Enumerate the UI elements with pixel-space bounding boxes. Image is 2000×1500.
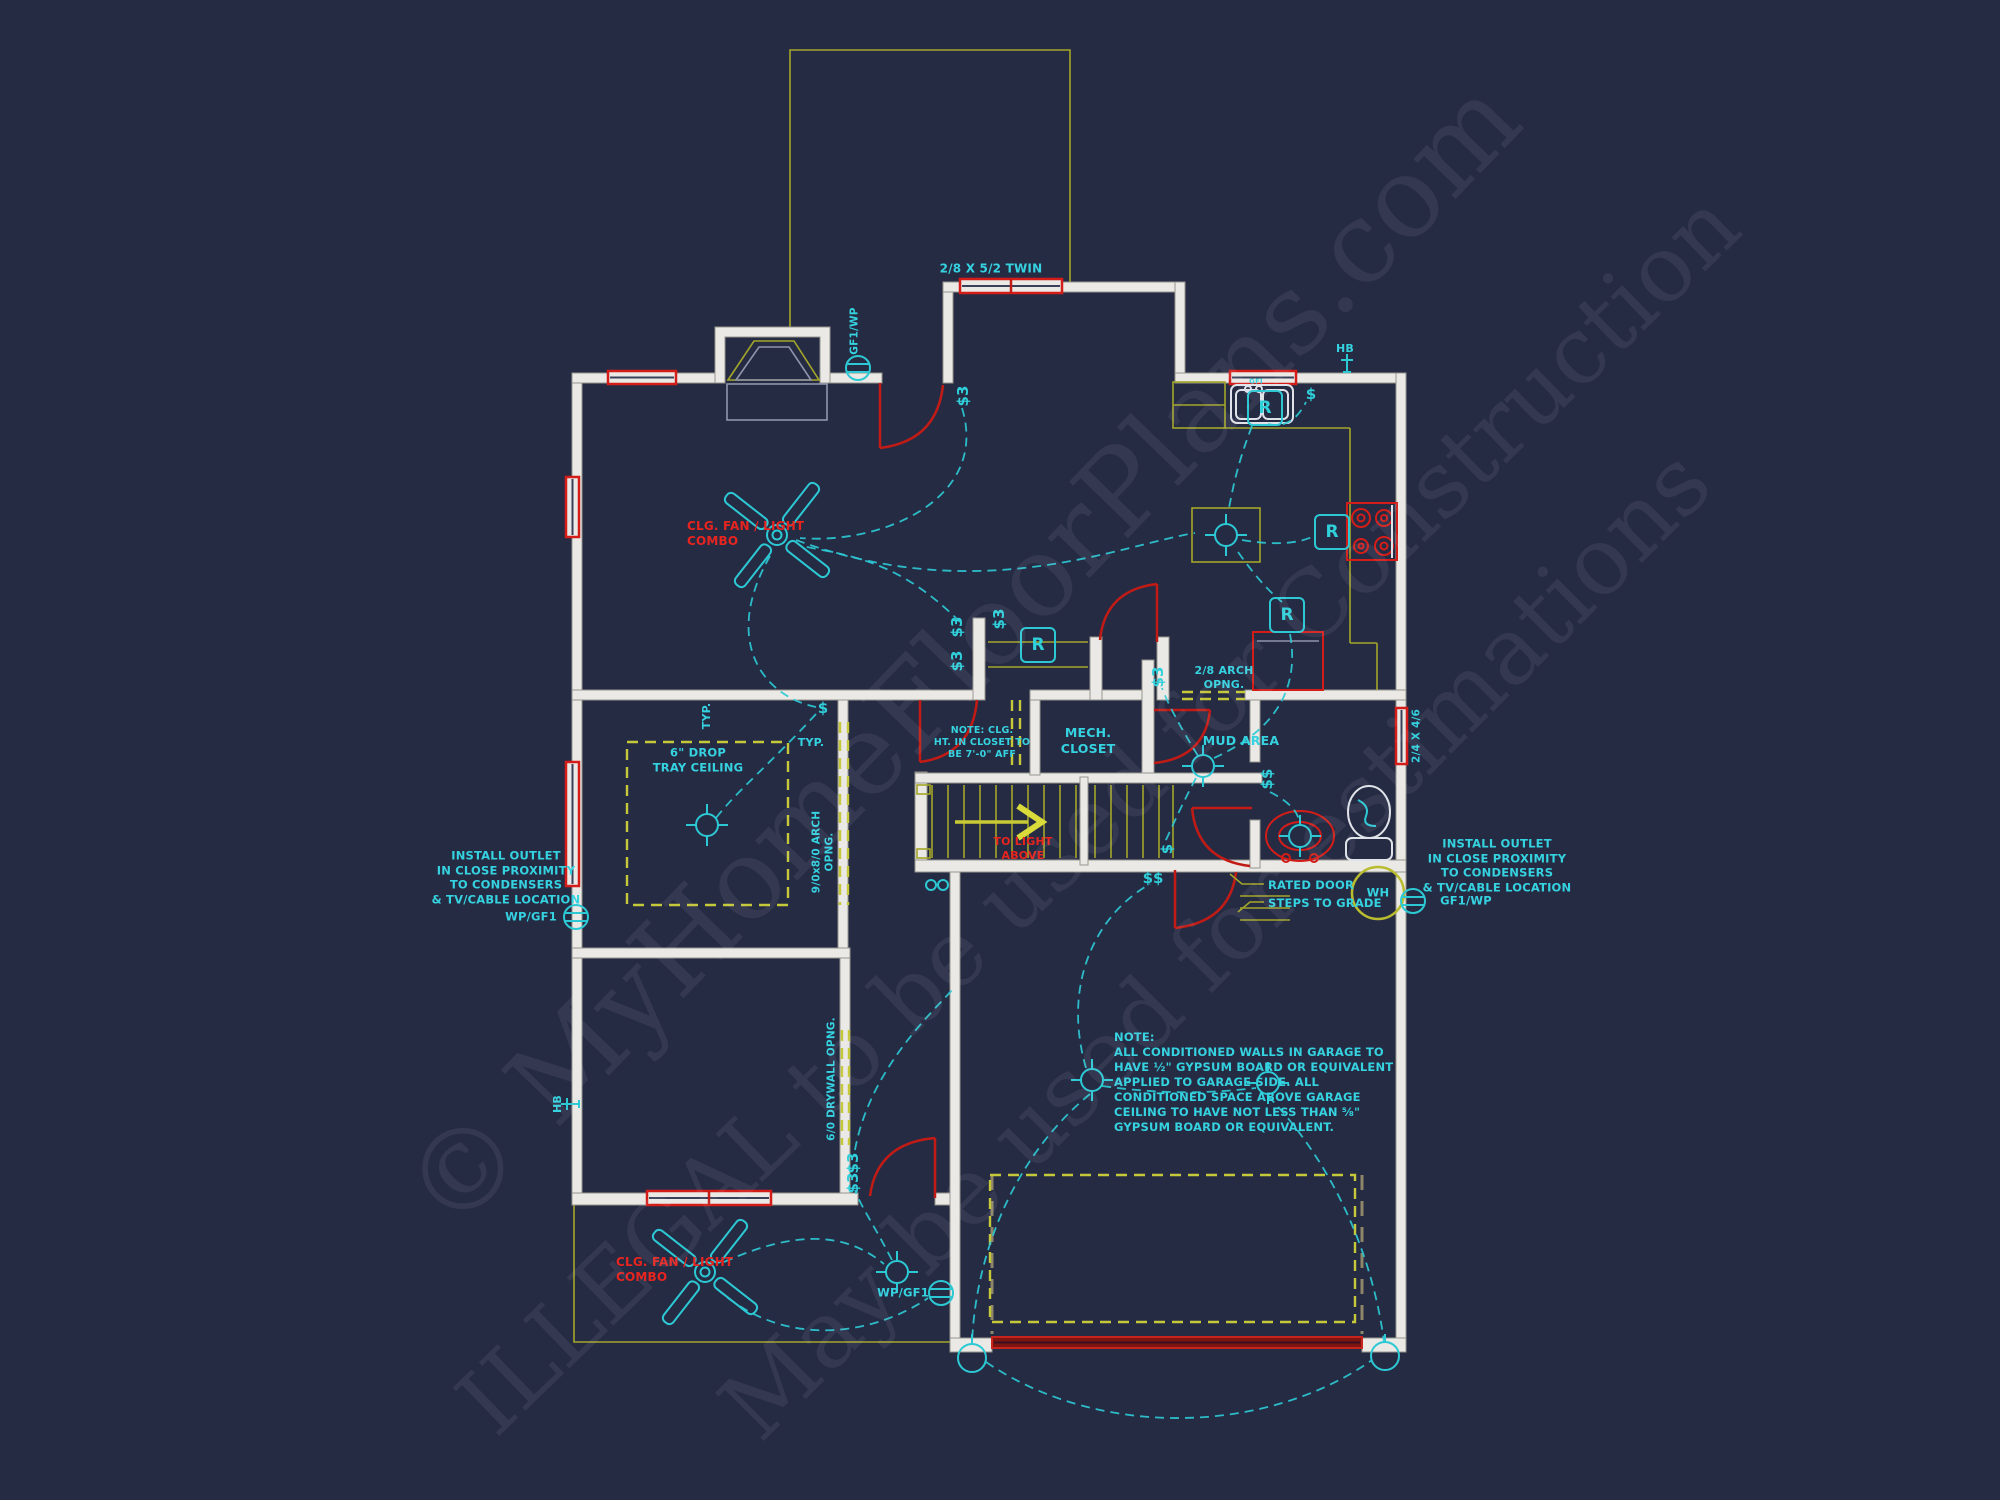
label-mech-closet: MECH. CLOSET — [1061, 725, 1116, 757]
label-hose-bib-top: HB — [1336, 342, 1354, 356]
label-install-outlet-left: INSTALL OUTLET IN CLOSE PROXIMITY TO CON… — [432, 849, 581, 908]
label-drywall-opening: 6/0 DRYWALL OPNG. — [825, 1017, 838, 1141]
recessed-light-kitchen-icon: R — [1325, 522, 1338, 542]
label-gf1-wp-right: GF1/WP — [1440, 894, 1492, 909]
switch-mud-single-icon: $ — [1158, 844, 1176, 854]
label-closet-note: NOTE: CLG. HT. IN CLOSET TO BE 7'-0" AFF — [934, 725, 1030, 761]
label-typ-vertical: TYP. — [700, 703, 714, 730]
label-garage-note: NOTE: ALL CONDITIONED WALLS IN GARAGE TO… — [1114, 1030, 1393, 1135]
label-twin-window: 2/8 X 5/2 TWIN — [940, 261, 1043, 276]
recessed-light-boxes — [1021, 391, 1349, 662]
label-to-light-above: TO LIGHT ABOVE — [993, 835, 1052, 863]
floor-plan-canvas: 2/8 X 5/2 TWIN HB HB GFI 2/8 ARCH OPNG. … — [0, 0, 2000, 1500]
switch-3way-entry-icon: $3 — [954, 386, 972, 407]
recessed-light-sink-icon: R — [1258, 398, 1271, 418]
pantry-cabinet — [1253, 632, 1323, 690]
label-hose-bib-left: HB — [551, 1095, 565, 1113]
label-gf1-wp-deck: GF1/WP — [848, 307, 861, 354]
switch-double-powder-icon: $$ — [1258, 769, 1276, 790]
label-water-heater: WH — [1367, 886, 1390, 901]
recessed-light-hall-icon: R — [1031, 635, 1044, 655]
switch-3way-bedroom2-a-icon: $3 — [844, 1153, 862, 1174]
fireplace — [715, 327, 830, 420]
garage-parking-dashed — [990, 1175, 1355, 1322]
switch-double-mud-icon: $$ — [1143, 869, 1164, 887]
range-cooktop — [1347, 503, 1397, 560]
label-wp-gf1-bottom: WP/GF1 — [877, 1286, 929, 1301]
switch-3way-bedroom2-b-icon: $3 — [844, 1173, 862, 1194]
label-ceiling-fan-combo-2: CLG. FAN / LIGHT COMBO — [616, 1255, 733, 1286]
label-ceiling-fan-combo-1: CLG. FAN / LIGHT COMBO — [687, 519, 804, 550]
switch-kitchen-icon: $ — [1306, 385, 1316, 403]
label-window-2446: 2/4 X 4/6 — [1410, 709, 1423, 763]
switch-3way-hall-3-icon: $3 — [990, 609, 1008, 630]
label-mud-area: MUD AREA — [1203, 733, 1279, 749]
label-typ-horizontal: TYP. — [798, 736, 825, 750]
switch-3way-mud-icon: $3 — [1149, 667, 1167, 688]
label-steps-to-grade: STEPS TO GRADE — [1268, 896, 1382, 911]
pedestal-sink — [1266, 811, 1334, 862]
toilet — [1346, 786, 1392, 860]
switch-3way-hall-1-icon: $3 — [948, 617, 966, 638]
switch-bedroom-icon: $ — [818, 699, 828, 717]
switch-3way-hall-2-icon: $3 — [948, 651, 966, 672]
label-arch-9080: 9/0x8/0 ARCH OPNG. — [811, 811, 838, 893]
label-gfi: GFI — [1249, 378, 1263, 387]
label-drop-tray: 6" DROP TRAY CEILING — [653, 745, 743, 774]
label-wp-gf1-left: WP/GF1 — [505, 910, 557, 925]
label-rated-door: RATED DOOR — [1268, 878, 1354, 893]
recessed-light-pantry-icon: R — [1280, 605, 1293, 625]
wall-outlets — [564, 356, 1425, 1305]
label-install-outlet-right: INSTALL OUTLET IN CLOSE PROXIMITY TO CON… — [1423, 837, 1572, 896]
label-arch-opening-28: 2/8 ARCH OPNG. — [1194, 664, 1253, 692]
